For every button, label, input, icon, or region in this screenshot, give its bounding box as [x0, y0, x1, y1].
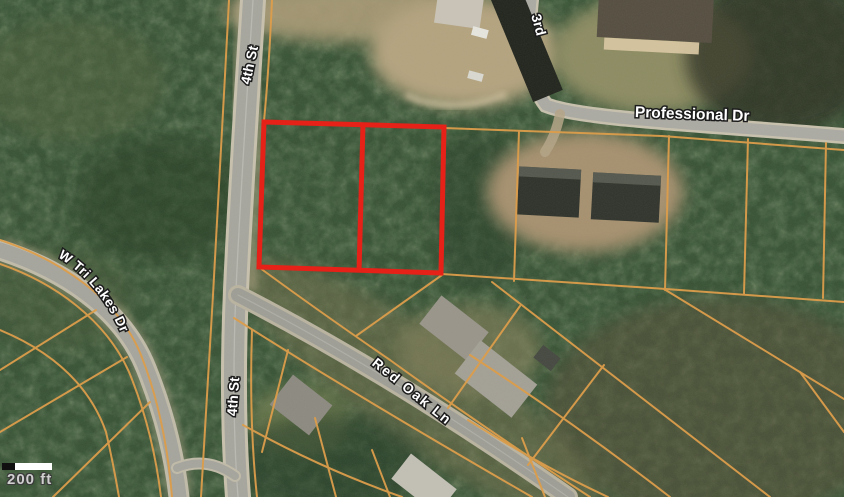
photo-grain — [0, 0, 844, 497]
scale-label: 200 ft — [7, 471, 52, 488]
aerial-map-canvas[interactable]: 4th St 3rd Professional Dr 4th St W Tri … — [0, 0, 844, 497]
scale-segment-light — [15, 463, 52, 470]
map-scale-bar: 200 ft — [2, 463, 52, 488]
street-label-4th-st-bottom: 4th St — [224, 376, 243, 416]
scale-segment-dark — [2, 463, 15, 470]
